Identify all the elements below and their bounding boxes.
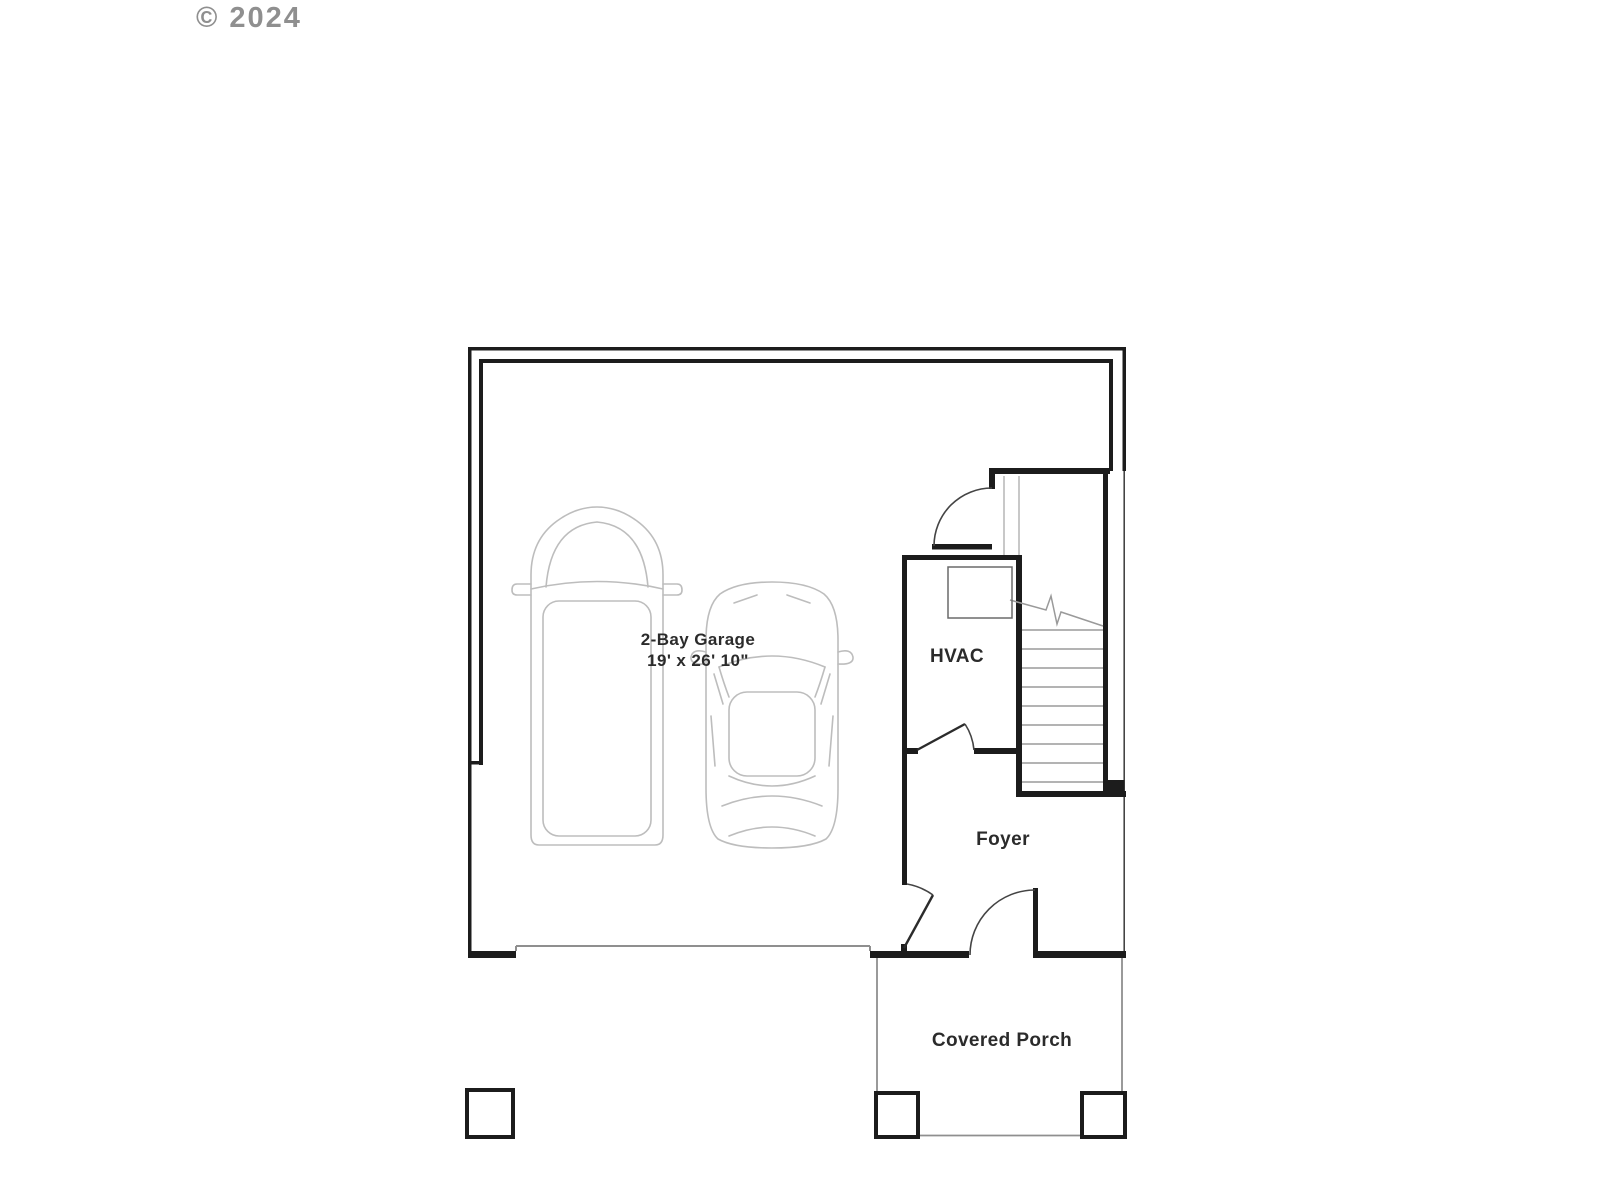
front-door-leaf xyxy=(1033,888,1038,955)
porch-columns xyxy=(467,1090,1125,1137)
stair-treads xyxy=(1022,630,1103,782)
front-door-swing-arc xyxy=(970,890,1035,955)
covered-porch-label: Covered Porch xyxy=(932,1030,1072,1052)
hall-door-leaf xyxy=(932,544,992,550)
hvac-door-swing-arc xyxy=(965,724,974,750)
stairs xyxy=(1010,596,1103,782)
garage-label-dimensions: 19' x 26' 10" xyxy=(641,650,755,671)
garage-foyer-door-swing-arc xyxy=(907,884,933,895)
floor-plan-drawing xyxy=(0,0,1600,1200)
hvac-door-leaf xyxy=(917,724,965,750)
hvac-label: HVAC xyxy=(930,646,984,668)
garage-label: 2-Bay Garage 19' x 26' 10" xyxy=(641,629,755,671)
floor-plan-page: © 2024 xyxy=(0,0,1600,1200)
car-top-view xyxy=(691,582,853,848)
garage-label-name: 2-Bay Garage xyxy=(641,629,755,650)
stair-break-line xyxy=(1010,596,1103,626)
porch-column-right xyxy=(1082,1093,1125,1137)
hvac-unit xyxy=(948,567,1012,618)
foyer-label: Foyer xyxy=(976,829,1030,851)
porch-column-left xyxy=(876,1093,918,1137)
garage-foyer-door-leaf xyxy=(904,895,933,948)
door-header-lines xyxy=(1004,476,1019,555)
garage-door-line xyxy=(516,946,870,951)
exterior-walls xyxy=(468,347,1126,958)
column-left-standalone xyxy=(467,1090,513,1137)
van-top-view xyxy=(512,507,682,845)
hall-door-swing-arc xyxy=(934,488,992,546)
